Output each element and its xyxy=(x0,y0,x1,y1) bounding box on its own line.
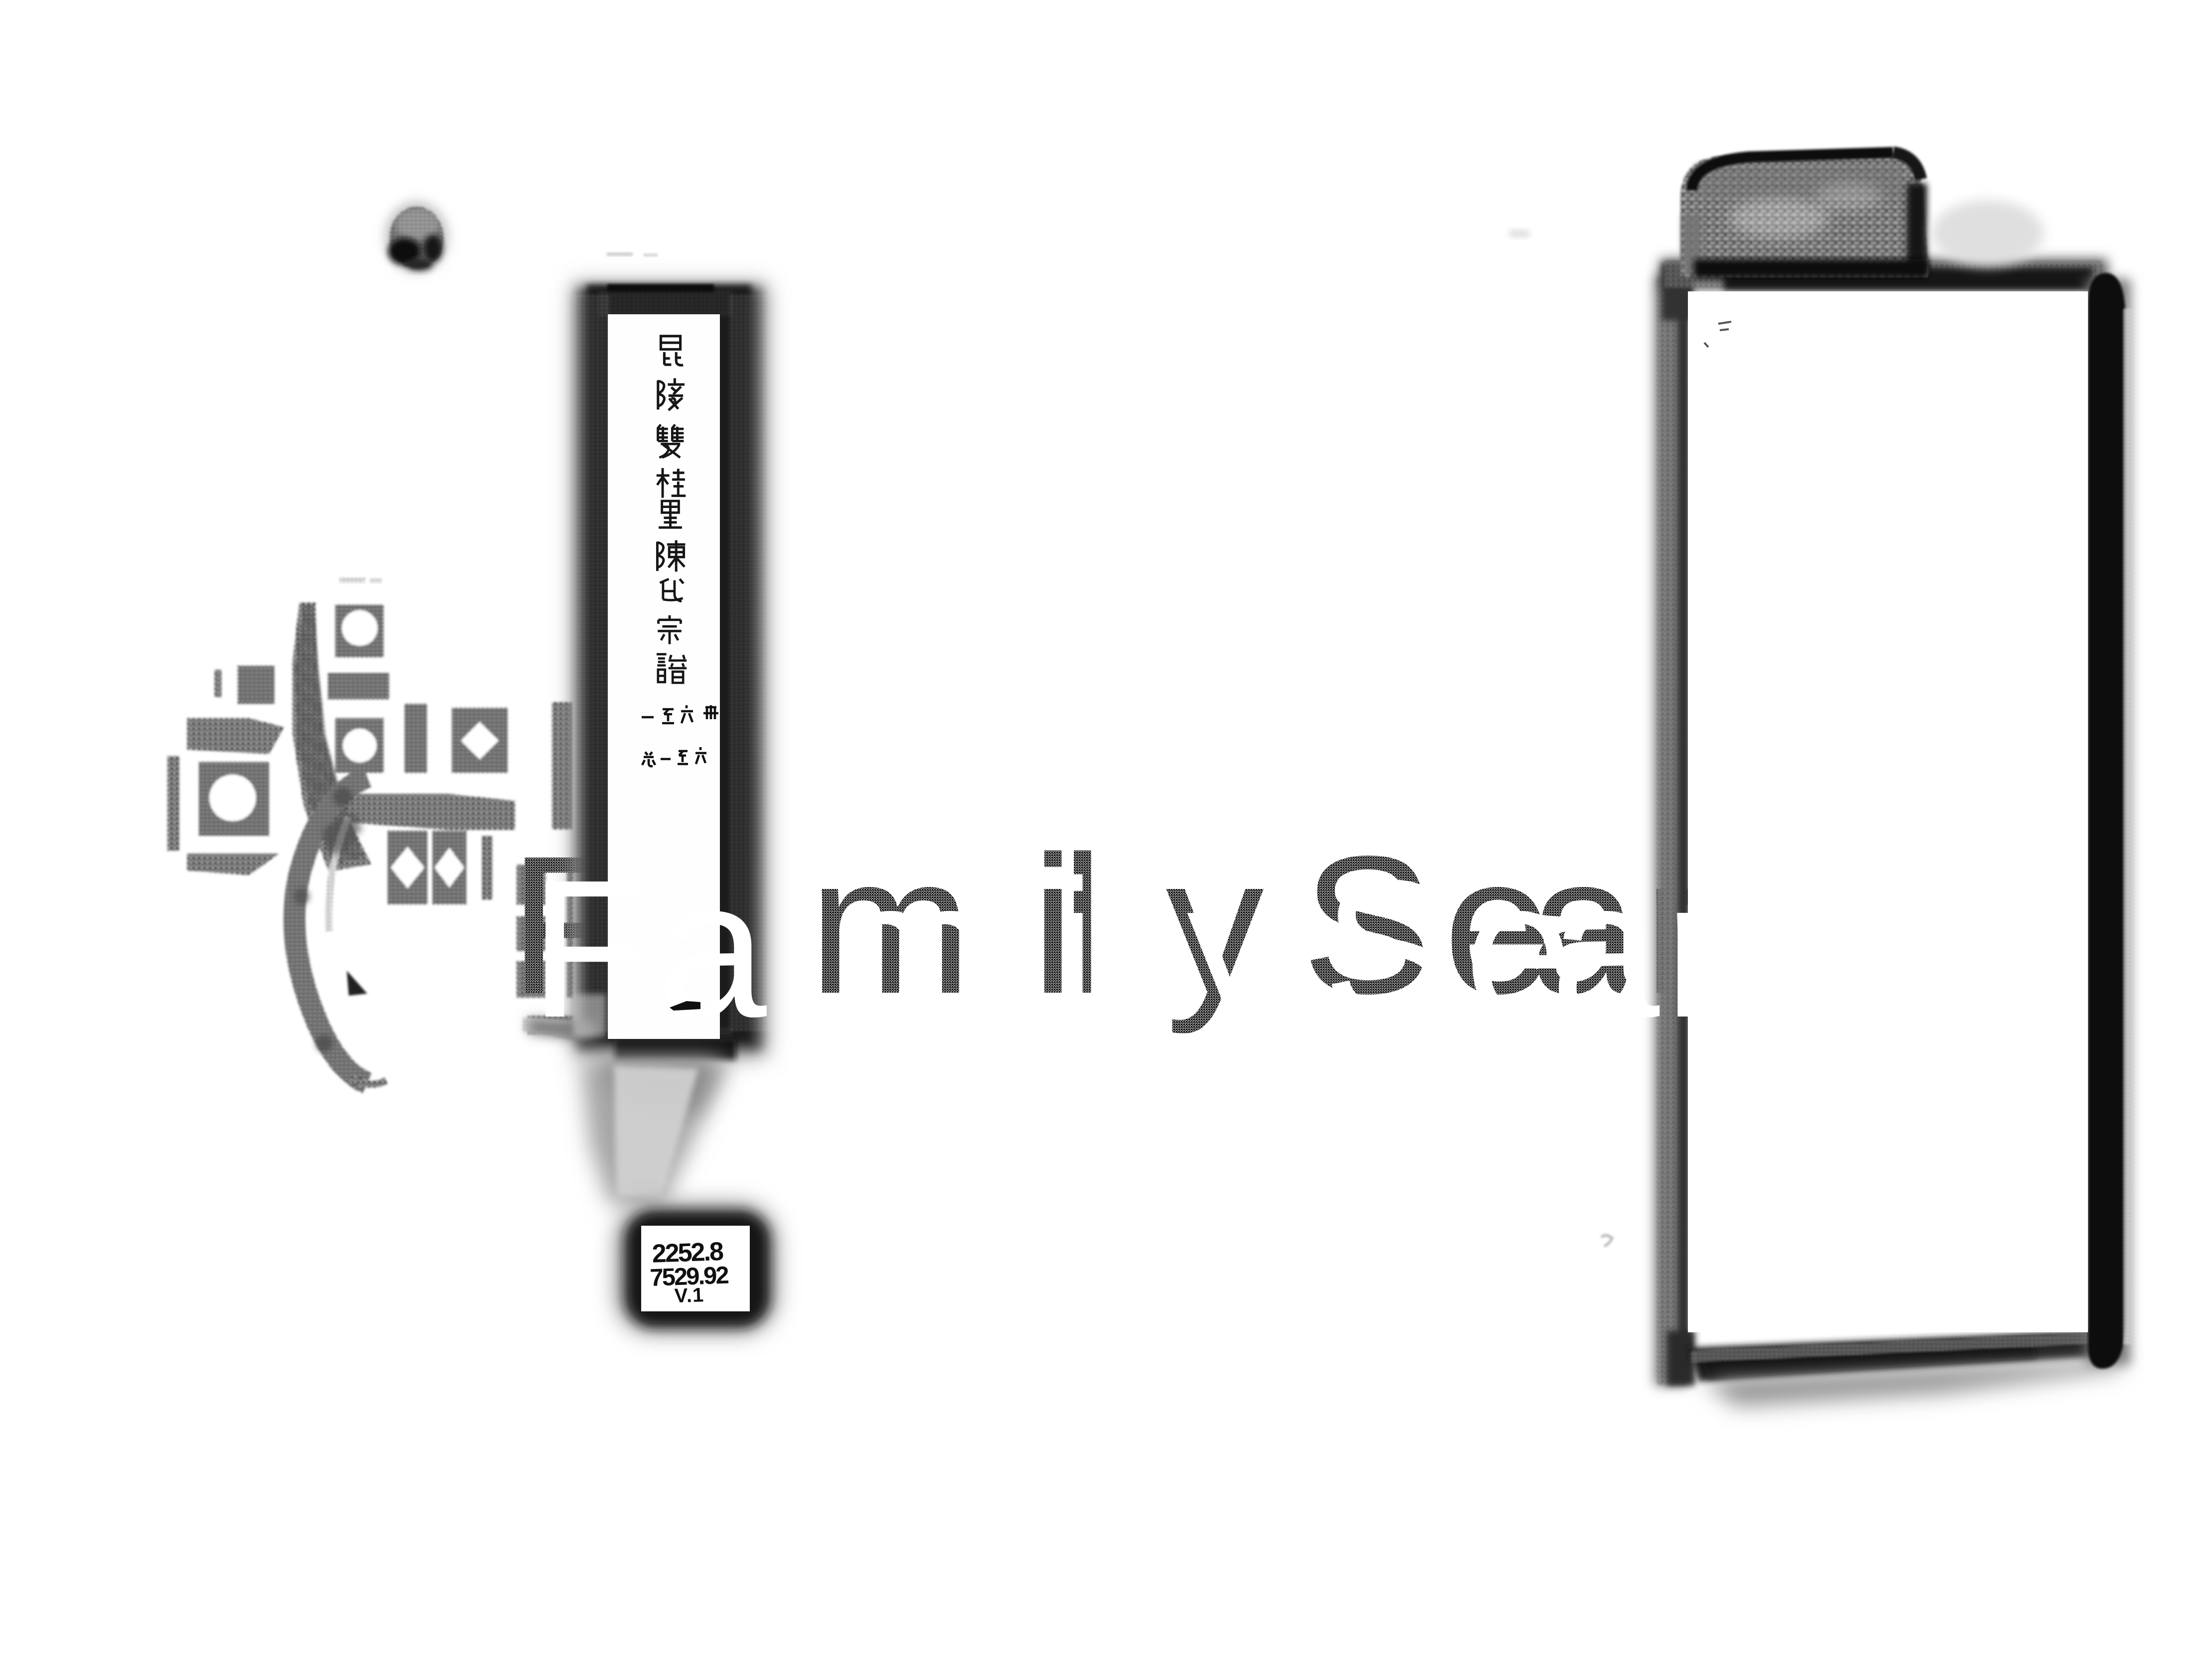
svg-text:FamilySearch: FamilySearch xyxy=(530,839,1987,1059)
svg-text:V.1: V.1 xyxy=(674,1284,704,1307)
